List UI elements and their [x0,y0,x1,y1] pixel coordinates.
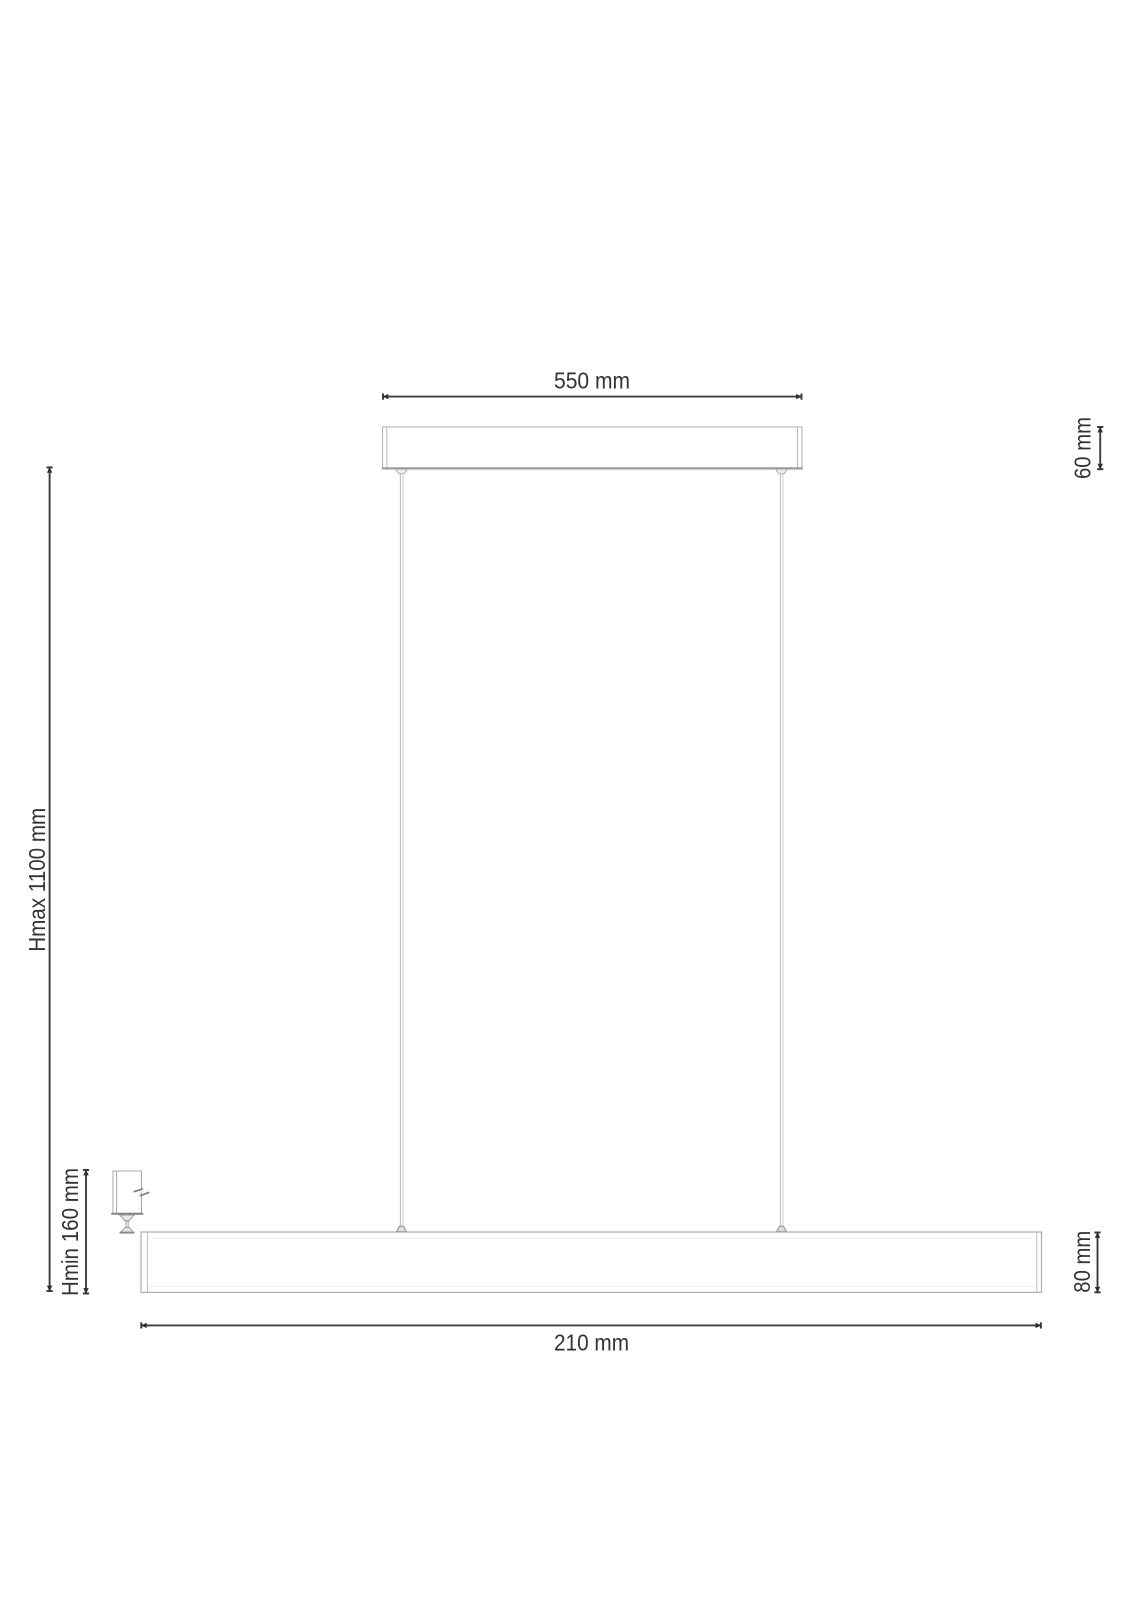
svg-text:60 mm: 60 mm [1070,417,1096,479]
svg-text:80 mm: 80 mm [1069,1231,1095,1293]
svg-text:550 mm: 550 mm [554,368,630,394]
svg-text:210 mm: 210 mm [554,1329,629,1355]
svg-text:Hmin 160 mm: Hmin 160 mm [57,1168,83,1296]
svg-text:Hmax 1100 mm: Hmax 1100 mm [24,808,50,952]
